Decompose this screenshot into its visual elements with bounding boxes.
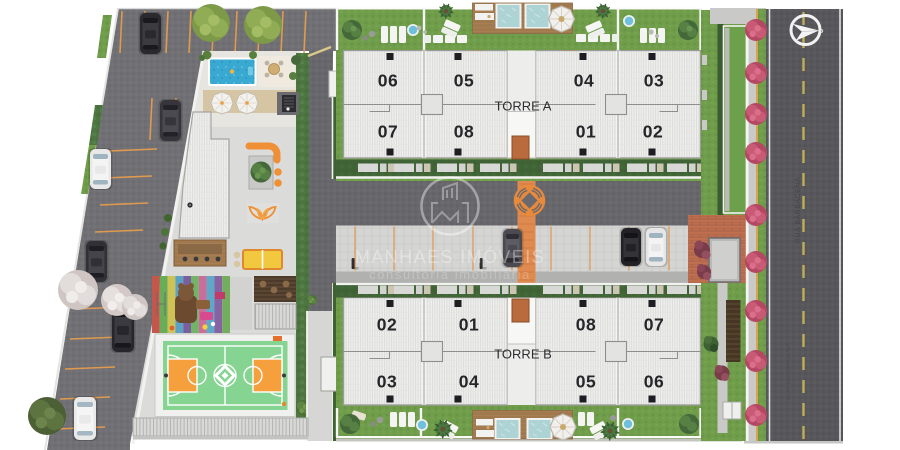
- svg-text:02: 02: [643, 122, 663, 142]
- svg-text:TORRE A: TORRE A: [495, 99, 552, 114]
- svg-text:05: 05: [576, 372, 596, 392]
- svg-text:05: 05: [454, 71, 474, 91]
- svg-text:01: 01: [459, 315, 479, 335]
- svg-text:06: 06: [378, 71, 398, 91]
- svg-text:RUA BARBACENA: RUA BARBACENA: [795, 177, 802, 243]
- svg-text:01: 01: [576, 122, 596, 142]
- svg-text:RUA BARBACENA: RUA BARBACENA: [786, 342, 792, 400]
- svg-text:07: 07: [644, 315, 664, 335]
- svg-text:03: 03: [644, 71, 664, 91]
- svg-text:consultoria imobiliária: consultoria imobiliária: [369, 267, 531, 282]
- svg-text:04: 04: [574, 71, 594, 91]
- svg-text:08: 08: [454, 122, 474, 142]
- svg-text:03: 03: [377, 372, 397, 392]
- svg-text:02: 02: [377, 315, 397, 335]
- svg-text:04: 04: [459, 372, 479, 392]
- svg-text:TORRE B: TORRE B: [494, 347, 552, 362]
- svg-text:07: 07: [378, 122, 398, 142]
- svg-text:06: 06: [644, 372, 664, 392]
- svg-text:MANHAES IMÓVEIS: MANHAES IMÓVEIS: [355, 246, 545, 267]
- svg-text:08: 08: [576, 315, 596, 335]
